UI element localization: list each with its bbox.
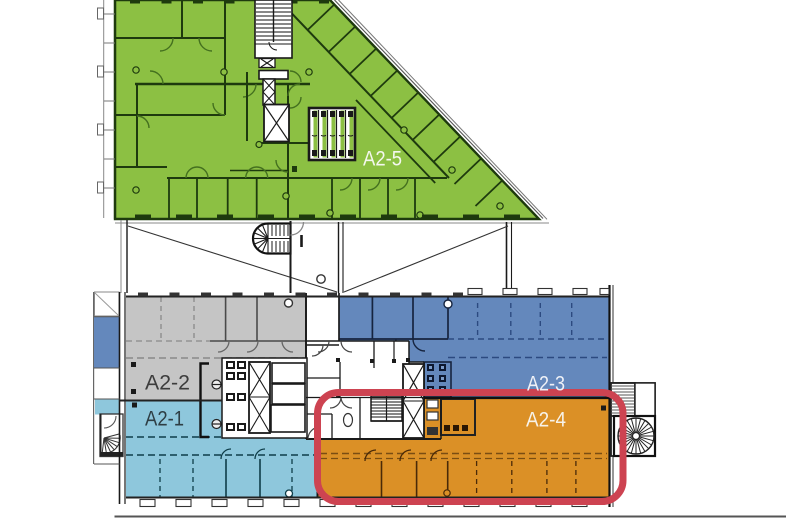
svg-text:A2-3: A2-3 xyxy=(527,373,565,396)
svg-text:A2-5: A2-5 xyxy=(363,148,402,171)
svg-text:A2-2: A2-2 xyxy=(145,372,190,395)
svg-text:A2-4: A2-4 xyxy=(526,409,566,432)
svg-text:A2-1: A2-1 xyxy=(145,408,184,431)
